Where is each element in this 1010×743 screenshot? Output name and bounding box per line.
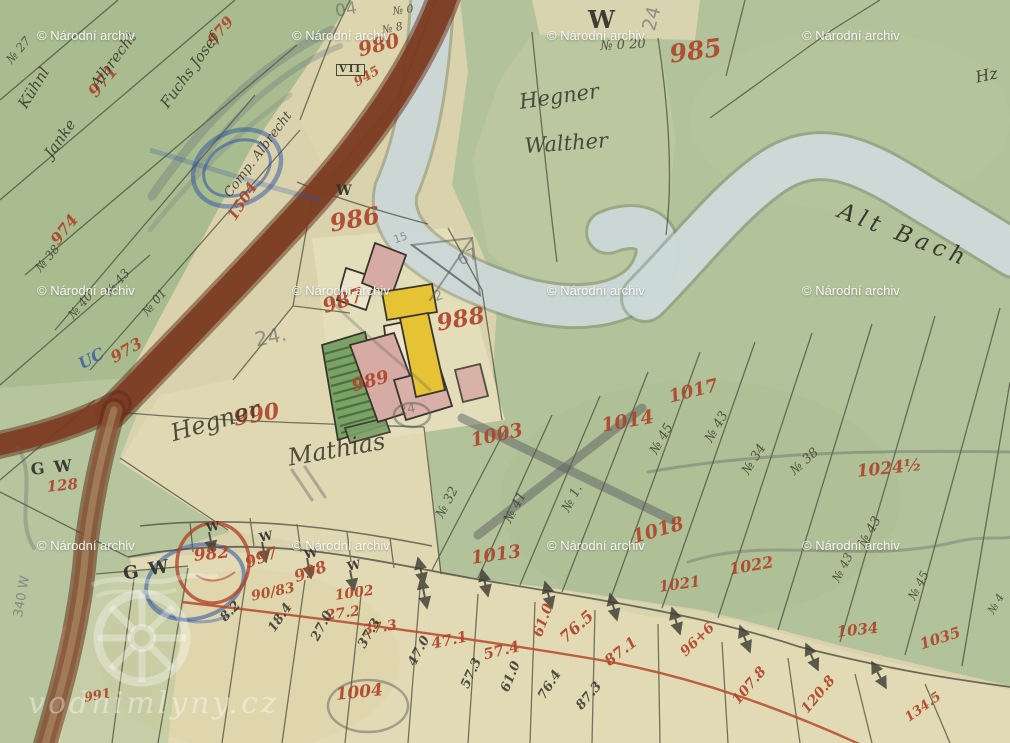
map-artwork bbox=[0, 0, 1010, 743]
historical-cadastral-map: Alt Bach97197997497315049459809859869879… bbox=[0, 0, 1010, 743]
